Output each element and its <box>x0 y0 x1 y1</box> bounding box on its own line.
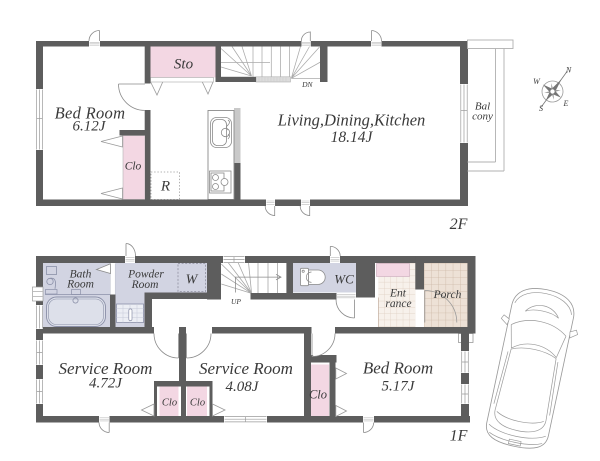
svg-text:Clo: Clo <box>309 388 327 402</box>
svg-text:cony: cony <box>472 111 493 123</box>
svg-text:UP: UP <box>231 297 241 306</box>
svg-text:W: W <box>186 273 199 288</box>
svg-text:Clo: Clo <box>162 398 177 409</box>
svg-text:Clo: Clo <box>190 398 205 409</box>
svg-text:1F: 1F <box>450 428 468 445</box>
svg-text:Porch: Porch <box>433 289 462 301</box>
svg-text:E: E <box>563 99 569 108</box>
svg-text:Room: Room <box>131 279 159 291</box>
svg-text:2F: 2F <box>450 216 468 233</box>
svg-text:Clo: Clo <box>125 161 142 173</box>
svg-text:6.12J: 6.12J <box>73 119 107 135</box>
svg-text:Room: Room <box>66 279 94 291</box>
svg-text:Living,Dining,Kitchen: Living,Dining,Kitchen <box>277 111 426 130</box>
svg-text:Bed Room: Bed Room <box>363 359 433 378</box>
svg-text:5.17J: 5.17J <box>382 379 416 395</box>
svg-text:4.08J: 4.08J <box>226 379 260 395</box>
svg-text:S: S <box>539 104 543 113</box>
svg-text:DN: DN <box>301 80 313 89</box>
svg-text:4.72J: 4.72J <box>89 376 123 392</box>
svg-text:WC: WC <box>334 272 354 287</box>
svg-text:Sto: Sto <box>174 57 194 73</box>
svg-text:Service Room: Service Room <box>199 359 293 378</box>
svg-text:R: R <box>160 179 170 195</box>
svg-text:18.14J: 18.14J <box>331 129 374 146</box>
svg-text:rance: rance <box>385 298 411 310</box>
svg-text:N: N <box>565 66 572 75</box>
